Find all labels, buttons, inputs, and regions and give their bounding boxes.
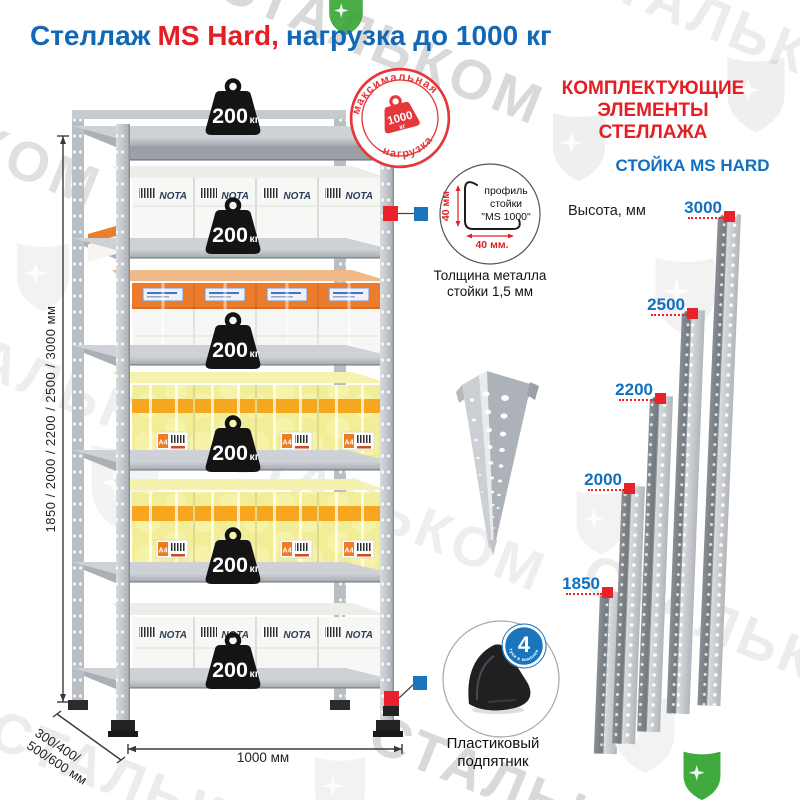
max-load-stamp: максимальная нагрузка 1000 кг	[348, 66, 452, 170]
rack-height-options-label: 1850 / 2000 / 2200 / 2500 / 3000 мм	[43, 269, 59, 569]
plastic-foot-caption: Пластиковый подпятник	[423, 735, 563, 771]
svg-text:кг: кг	[250, 451, 260, 463]
leader-marker	[624, 483, 635, 494]
svg-text:200: 200	[212, 441, 248, 465]
svg-text:A4: A4	[159, 440, 168, 447]
svg-text:200: 200	[212, 658, 248, 682]
shelf-load-badge: 200кг	[193, 312, 273, 374]
thickness-line1: Толщина металла	[420, 268, 560, 284]
svg-text:200: 200	[212, 553, 248, 577]
title-load: нагрузка до 1000 кг	[286, 20, 552, 51]
metal-thickness-caption: Толщина металла стойки 1,5 мм	[420, 268, 560, 300]
post-3000	[697, 214, 741, 707]
svg-text:кг: кг	[250, 563, 260, 575]
post-height-1850: 1850	[560, 574, 600, 594]
post-height-2000: 2000	[582, 470, 622, 490]
svg-text:A4: A4	[159, 548, 168, 555]
leader-dots	[588, 489, 624, 491]
profile-marker-top	[383, 206, 428, 221]
svg-text:A4: A4	[283, 440, 292, 447]
svg-text:кг: кг	[250, 348, 260, 360]
post-profile-diagram: 40 мм 40 мм. профиль стойки "MS 1000"	[440, 164, 540, 264]
post-subheading: СТОЙКА MS HARD	[600, 156, 785, 176]
profile-dim-horizontal: 40 мм.	[475, 239, 508, 251]
infographic-root: СТАЛЬКОМ СТАЛЬКОМ СТАЛЬКОМ СТАЛЬКОМ СТАЛ…	[0, 0, 800, 800]
badge-count: 4	[518, 632, 531, 657]
leader-marker	[724, 211, 735, 222]
leader-marker	[655, 393, 666, 404]
foot-caption-line2: подпятник	[423, 753, 563, 771]
rack-width-label: 1000 мм	[200, 750, 326, 765]
svg-text:кг: кг	[250, 114, 260, 126]
box-brand-label: NOTA	[345, 191, 373, 202]
svg-text:200: 200	[212, 223, 248, 247]
components-heading-line1: КОМПЛЕКТУЮЩИЕ	[545, 78, 761, 100]
svg-text:200: 200	[212, 104, 248, 128]
post-2500	[666, 310, 704, 715]
leader-marker	[687, 308, 698, 319]
leader-dots	[688, 217, 724, 219]
shelf-load-badge: 200кг	[193, 415, 273, 477]
svg-text:кг: кг	[250, 668, 260, 680]
thickness-line2: стойки 1,5 мм	[420, 284, 560, 300]
box-brand-label: NOTA	[345, 630, 373, 641]
svg-text:кг: кг	[250, 233, 260, 245]
box-brand-label: NOTA	[283, 191, 311, 202]
svg-text:A4: A4	[345, 440, 354, 447]
post-height-3000: 3000	[682, 198, 722, 218]
svg-text:A4: A4	[345, 548, 354, 555]
title-model: MS Hard,	[158, 20, 279, 51]
leader-dots	[651, 314, 687, 316]
box-brand-label: NOTA	[283, 630, 311, 641]
profile-label-3: "MS 1000"	[481, 211, 531, 223]
corner-post-perspective	[456, 371, 539, 556]
profile-dim-vertical: 40 мм	[440, 191, 452, 221]
page-title: СтеллажMS Hard,нагрузка до 1000 кг	[30, 20, 559, 52]
profile-label-1: профиль	[484, 185, 528, 197]
shelf-load-badge: 200кг	[193, 527, 273, 589]
post-height-2500: 2500	[645, 295, 685, 315]
leader-dots	[566, 593, 602, 595]
svg-text:200: 200	[212, 338, 248, 362]
components-heading: КОМПЛЕКТУЮЩИЕ ЭЛЕМЕНТЫ СТЕЛЛАЖА	[545, 78, 761, 144]
box-brand-label: NOTA	[159, 630, 187, 641]
post-2200	[637, 396, 673, 733]
leader-dots	[619, 399, 655, 401]
box-brand-label: NOTA	[159, 191, 187, 202]
svg-text:A4: A4	[283, 548, 292, 555]
title-product: Стеллаж	[30, 20, 151, 51]
shelf-load-badge: 200кг	[193, 197, 273, 259]
height-axis-label: Высота, мм	[568, 203, 646, 219]
leader-marker	[602, 587, 613, 598]
post-height-2200: 2200	[613, 380, 653, 400]
shelf-load-badge: 200кг	[193, 78, 273, 140]
profile-label-2: стойки	[490, 198, 522, 210]
components-heading-line2: ЭЛЕМЕНТЫ СТЕЛЛАЖА	[545, 100, 761, 144]
foot-caption-line1: Пластиковый	[423, 735, 563, 753]
shelf-load-badge: 200кг	[193, 632, 273, 694]
